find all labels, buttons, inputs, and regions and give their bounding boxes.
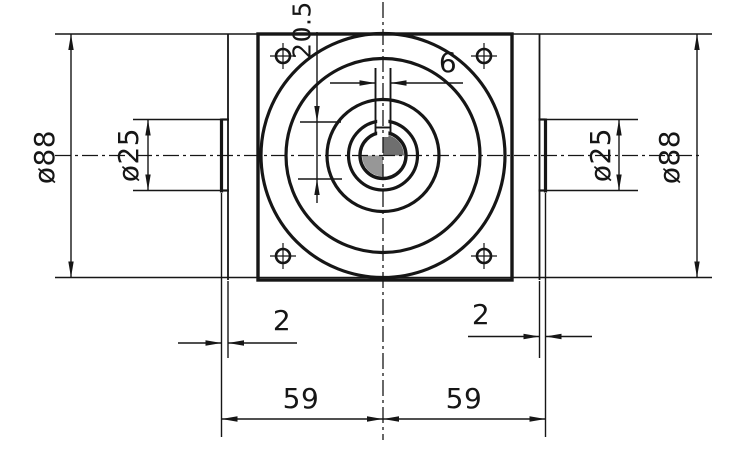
dim-label-hub-diameter-left: ø25 xyxy=(115,128,143,182)
dim-label-hub-diameter-right: ø25 xyxy=(587,128,615,182)
dim-label-keyway-width: 6 xyxy=(439,49,457,77)
dim-label-span-right: 59 xyxy=(446,385,483,413)
dim-label-step-left: 2 xyxy=(273,307,291,335)
centerlines xyxy=(55,2,700,440)
dim-label-outer-diameter-left: ø88 xyxy=(31,130,59,184)
technical-drawing: ø88 ø25 ø25 ø88 20.5 6 2 2 59 59 xyxy=(0,0,750,451)
drawing-linework xyxy=(0,0,750,451)
dim-label-outer-diameter-right: ø88 xyxy=(656,130,684,184)
dimension-arrows xyxy=(68,34,699,422)
dim-label-keyway-depth: 20.5 xyxy=(290,1,315,59)
dim-label-span-left: 59 xyxy=(283,385,320,413)
dim-label-step-right: 2 xyxy=(472,301,490,329)
